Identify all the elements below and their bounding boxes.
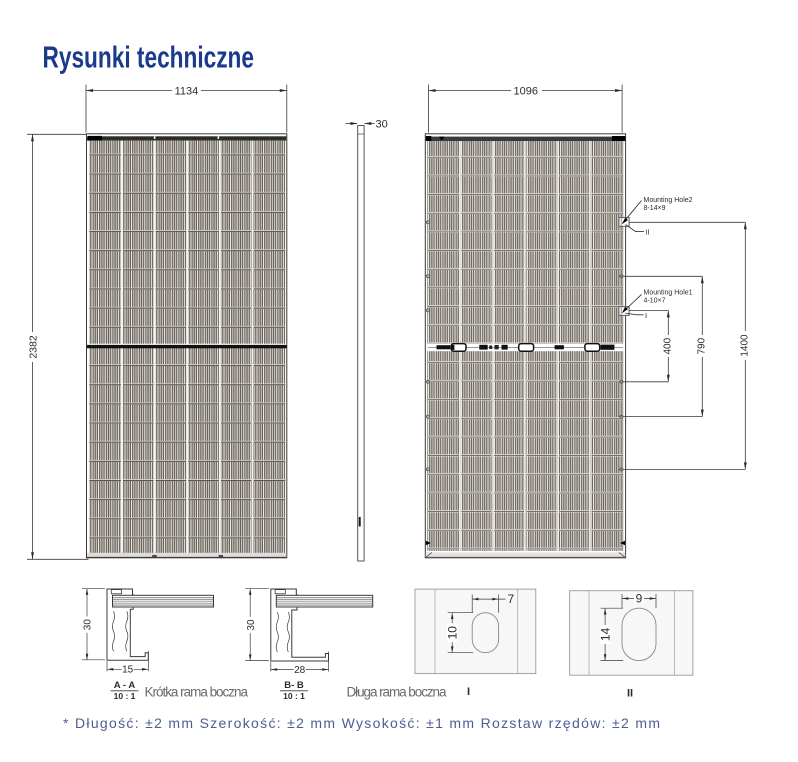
svg-text:14: 14 — [598, 627, 612, 641]
svg-text:4-10×7: 4-10×7 — [644, 298, 666, 305]
svg-text:30: 30 — [83, 619, 94, 631]
svg-text:30: 30 — [246, 619, 257, 631]
svg-text:2382: 2382 — [27, 335, 39, 359]
svg-text:II: II — [627, 688, 633, 700]
svg-text:7: 7 — [508, 592, 515, 606]
svg-text:II: II — [646, 228, 650, 237]
svg-text:1400: 1400 — [740, 334, 751, 357]
svg-text:Mounting Hole2: Mounting Hole2 — [644, 197, 693, 204]
svg-text:* Długość: ±2 mm Szerokość: ±2: * Długość: ±2 mm Szerokość: ±2 mm Wysoko… — [63, 715, 660, 731]
svg-text:9: 9 — [636, 592, 643, 606]
svg-text:8-14×9: 8-14×9 — [644, 205, 666, 212]
svg-text:Mounting Hole1: Mounting Hole1 — [644, 290, 693, 297]
svg-text:I: I — [467, 686, 470, 698]
svg-text:28: 28 — [294, 665, 306, 676]
svg-text:30: 30 — [376, 119, 388, 131]
svg-text:B- B: B- B — [284, 680, 304, 691]
svg-text:Długa rama boczna: Długa rama boczna — [347, 685, 447, 700]
svg-text:A - A: A - A — [114, 680, 136, 691]
svg-text:Rysunki techniczne: Rysunki techniczne — [43, 41, 255, 75]
svg-text:1096: 1096 — [514, 85, 538, 97]
svg-text:10 : 1: 10 : 1 — [283, 691, 305, 701]
svg-text:I: I — [645, 311, 647, 320]
svg-text:Krótka rama boczna: Krótka rama boczna — [145, 685, 249, 700]
svg-text:10: 10 — [446, 626, 460, 640]
svg-text:15: 15 — [122, 665, 134, 676]
svg-text:1134: 1134 — [175, 85, 199, 97]
svg-text:400: 400 — [663, 337, 674, 354]
svg-text:790: 790 — [697, 337, 708, 354]
svg-text:10 : 1: 10 : 1 — [114, 691, 136, 701]
